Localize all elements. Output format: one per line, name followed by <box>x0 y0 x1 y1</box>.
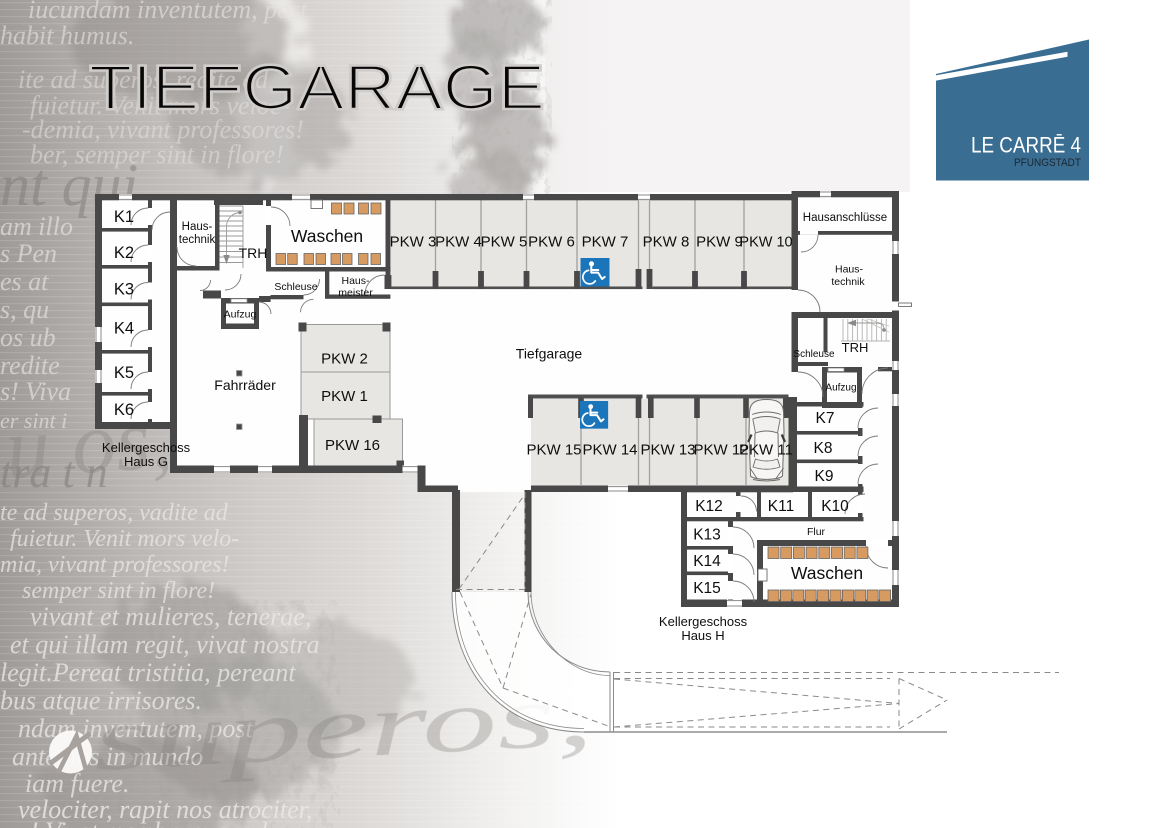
svg-text:K4: K4 <box>114 320 134 338</box>
svg-text:vivant et mulieres, tenerae,: vivant et mulieres, tenerae, <box>30 602 311 631</box>
svg-text:Kellergeschoss: Kellergeschoss <box>659 614 748 629</box>
svg-text:Tiefgarage: Tiefgarage <box>516 346 583 362</box>
svg-text:! Vivat membrum quod-: ! Vivat membrum quod- <box>30 817 276 828</box>
svg-text:Schleuse: Schleuse <box>793 349 835 360</box>
svg-text:K14: K14 <box>693 553 721 570</box>
svg-text:Flur: Flur <box>807 526 826 538</box>
svg-text:K3: K3 <box>114 281 134 299</box>
svg-text:et qui illam regit, vivat nost: et qui illam regit, vivat nostra <box>10 630 320 659</box>
svg-text:PKW 2: PKW 2 <box>321 351 368 368</box>
svg-text:PKW 1: PKW 1 <box>321 388 368 405</box>
svg-text:am illo: am illo <box>0 212 73 241</box>
svg-text:K12: K12 <box>695 498 723 515</box>
svg-text:PKW 16: PKW 16 <box>325 437 380 454</box>
svg-text:technik: technik <box>831 276 865 288</box>
svg-text:K13: K13 <box>693 527 721 544</box>
svg-text:K15: K15 <box>693 580 721 597</box>
svg-text:LE CARRĒ 4: LE CARRĒ 4 <box>971 133 1081 158</box>
svg-text:PKW 11: PKW 11 <box>739 442 793 459</box>
svg-text:PKW 15: PKW 15 <box>526 442 581 459</box>
svg-text:PKW 8: PKW 8 <box>643 234 690 251</box>
svg-text:semper sint in flore!: semper sint in flore! <box>22 578 215 604</box>
svg-text:TIEFGARAGE: TIEFGARAGE <box>89 53 545 123</box>
svg-text:PKW 6: PKW 6 <box>528 234 575 251</box>
svg-text:Waschen: Waschen <box>791 563 863 583</box>
svg-text:Schleuse: Schleuse <box>274 281 317 293</box>
svg-text:Kellergeschoss: Kellergeschoss <box>102 440 191 455</box>
svg-text:TRH: TRH <box>842 340 869 355</box>
svg-text:PKW 5: PKW 5 <box>481 234 528 251</box>
svg-text:K11: K11 <box>768 498 794 515</box>
svg-text:s Pen: s Pen <box>0 239 57 268</box>
svg-text:PKW 3: PKW 3 <box>390 234 437 251</box>
svg-text:K5: K5 <box>114 364 134 382</box>
svg-text:Haus G: Haus G <box>124 454 168 469</box>
svg-text:Hausanschlüsse: Hausanschlüsse <box>803 212 887 224</box>
svg-text:PKW 10: PKW 10 <box>739 235 792 251</box>
svg-text:PKW 9: PKW 9 <box>696 234 743 251</box>
svg-text:Waschen: Waschen <box>291 226 363 246</box>
svg-text:es at: es at <box>0 267 49 296</box>
svg-text:K6: K6 <box>114 401 134 419</box>
svg-text:habit humus.: habit humus. <box>0 21 134 50</box>
svg-text:PKW 4: PKW 4 <box>435 234 482 251</box>
svg-text:Haus-: Haus- <box>835 264 864 276</box>
svg-text:meister: meister <box>338 287 373 299</box>
svg-text:Haus-: Haus- <box>182 221 213 233</box>
svg-text:Fahrräder: Fahrräder <box>214 377 276 393</box>
svg-text:K1: K1 <box>114 208 134 226</box>
svg-text:PKW 14: PKW 14 <box>582 442 637 459</box>
svg-text:K7: K7 <box>816 410 835 427</box>
svg-text:mia, vivant professores!: mia, vivant professores! <box>0 552 230 578</box>
svg-text:Aufzug: Aufzug <box>825 383 856 394</box>
svg-text:K2: K2 <box>114 244 134 262</box>
svg-text:PKW 7: PKW 7 <box>582 234 629 251</box>
svg-text:s, qu: s, qu <box>0 295 49 324</box>
svg-text:K8: K8 <box>814 440 833 457</box>
svg-text:te ad superos, vadite ad: te ad superos, vadite ad <box>0 500 229 526</box>
svg-text:fuietur. Venit mors velo-: fuietur. Venit mors velo- <box>10 526 239 552</box>
svg-text:redite: redite <box>0 351 60 380</box>
svg-text:PKW 13: PKW 13 <box>640 442 695 459</box>
svg-text:TRH: TRH <box>239 245 268 261</box>
svg-text:Aufzug: Aufzug <box>224 309 257 321</box>
svg-text:technik: technik <box>179 234 216 246</box>
svg-text:PFUNGSTADT: PFUNGSTADT <box>1014 157 1081 169</box>
svg-text:K9: K9 <box>815 468 834 485</box>
svg-text:Haus-: Haus- <box>341 275 370 287</box>
svg-text:os ub: os ub <box>0 323 56 352</box>
svg-text:K10: K10 <box>821 498 849 515</box>
svg-text:Haus H: Haus H <box>681 628 724 643</box>
